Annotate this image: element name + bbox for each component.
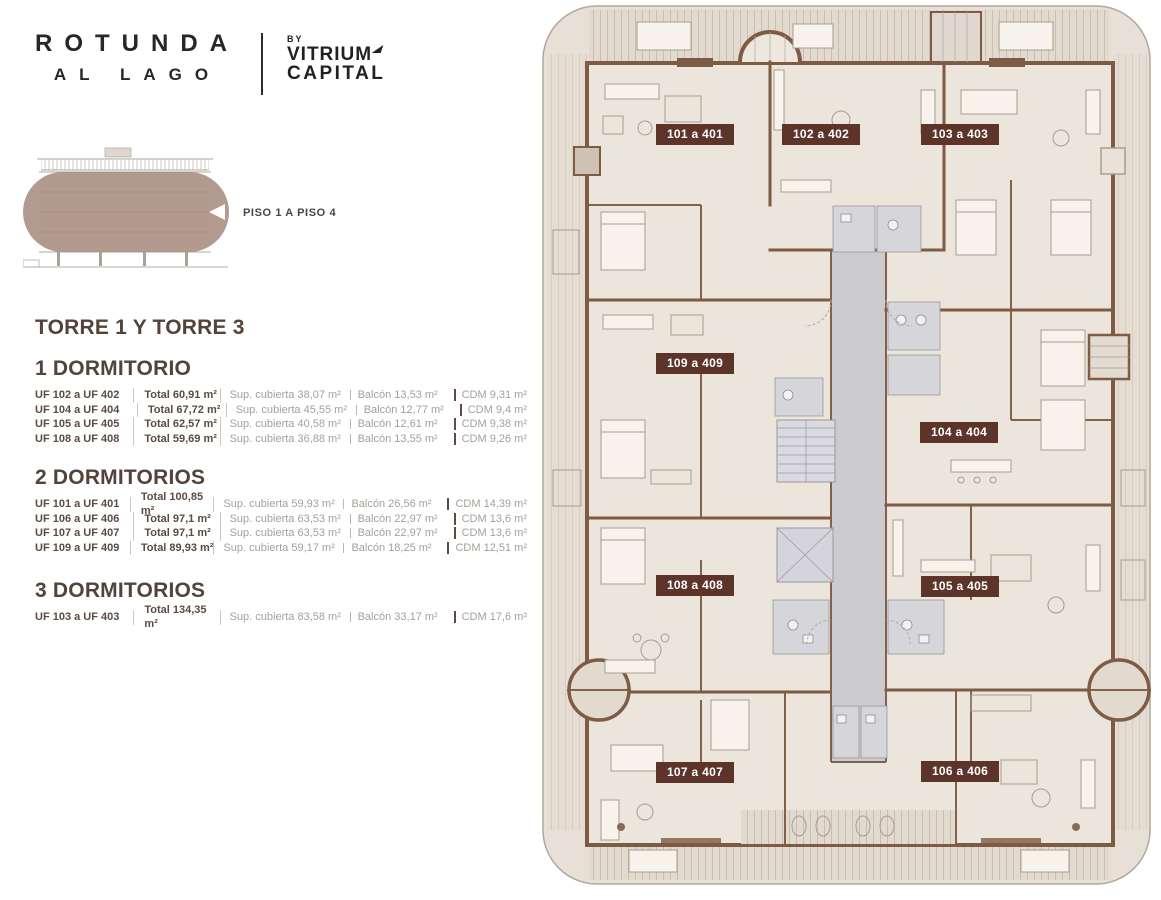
covered-area: Sup. cubierta 83,58 m²: [230, 610, 348, 625]
separator: [454, 513, 456, 525]
table-row: UF 102 a UF 402 Total 60,91 m² Sup. cubi…: [35, 388, 527, 403]
separator: [454, 418, 456, 430]
separator: [350, 419, 351, 429]
unit-table: UF 103 a UF 403 Total 134,35 m² Sup. cub…: [35, 610, 527, 625]
total-area: Total 60,91 m²: [133, 388, 219, 403]
balcony-area: Balcón 22,97 m²: [358, 526, 450, 541]
unit-range: UF 106 a UF 406: [35, 512, 133, 527]
right-edge-stair: [1089, 335, 1129, 379]
unit-badge-102: 102 a 402: [782, 124, 860, 145]
separator: [454, 611, 456, 623]
table-row: UF 103 a UF 403 Total 134,35 m² Sup. cub…: [35, 610, 527, 625]
balcony-area: Balcón 26,56 m²: [351, 497, 443, 512]
separator: [343, 499, 344, 509]
vitrium-logo: BY VITRIUM CAPITAL: [287, 30, 385, 84]
vitrium-wordmark: VITRIUM: [287, 46, 385, 64]
info-panel: ROTUNDA AL LAGO BY VITRIUM CAPITAL: [0, 0, 541, 900]
unit-badge-109: 109 a 409: [656, 353, 734, 374]
unit-badge-108: 108 a 408: [656, 575, 734, 596]
area-breakdown: Sup. cubierta 63,53 m² Balcón 22,97 m² C…: [220, 526, 527, 541]
separator: [454, 527, 456, 539]
unit-badge-107: 107 a 407: [656, 762, 734, 783]
unit-badge-103: 103 a 403: [921, 124, 999, 145]
section-title: 1 DORMITORIO: [35, 357, 527, 381]
covered-area: Sup. cubierta 45,55 m²: [236, 403, 354, 418]
balcony-area: Balcón 22,97 m²: [358, 512, 450, 527]
separator: [454, 433, 456, 445]
unit-range: UF 109 a UF 409: [35, 541, 130, 556]
total-area: Total 89,93 m²: [130, 541, 214, 556]
table-row: UF 106 a UF 406 Total 97,1 m² Sup. cubie…: [35, 512, 527, 527]
table-row: UF 108 a UF 408 Total 59,69 m² Sup. cubi…: [35, 432, 527, 447]
separator: [350, 434, 351, 444]
separator: [460, 404, 462, 416]
cdm-area: CDM 9,31 m²: [462, 388, 527, 403]
by-label: BY: [287, 34, 385, 44]
separator: [447, 542, 449, 554]
unit-badge-101: 101 a 401: [656, 124, 734, 145]
brand-lockup: ROTUNDA AL LAGO BY VITRIUM CAPITAL: [25, 30, 385, 95]
total-area: Total 62,57 m²: [133, 417, 219, 432]
floor-plan: 101 a 401 102 a 402 103 a 403 109 a 409 …: [541, 0, 1161, 900]
table-row: UF 107 a UF 407 Total 97,1 m² Sup. cubie…: [35, 526, 527, 541]
table-row: UF 109 a UF 409 Total 89,93 m² Sup. cubi…: [35, 541, 527, 556]
area-breakdown: Sup. cubierta 40,58 m² Balcón 12,61 m² C…: [220, 417, 527, 432]
area-breakdown: Sup. cubierta 38,07 m² Balcón 13,53 m² C…: [220, 388, 527, 403]
covered-area: Sup. cubierta 59,17 m²: [223, 541, 341, 556]
section-title: 2 DORMITORIOS: [35, 466, 527, 490]
section-title: 3 DORMITORIOS: [35, 579, 527, 603]
total-area: Total 67,72 m²: [137, 403, 226, 418]
balcony-area: Balcón 13,55 m²: [358, 432, 450, 447]
unit-badge-104: 104 a 404: [920, 422, 998, 443]
unit-range: UF 102 a UF 402: [35, 388, 133, 403]
unit-range: UF 103 a UF 403: [35, 610, 133, 625]
unit-table: UF 101 a UF 401 Total 100,85 m² Sup. cub…: [35, 497, 527, 555]
brand-name-line2: AL LAGO: [25, 65, 250, 85]
section-3-dormitorios: 3 DORMITORIOS UF 103 a UF 403 Total 134,…: [35, 579, 527, 625]
logo-divider: [261, 33, 263, 95]
cdm-area: CDM 13,6 m²: [462, 526, 527, 541]
total-area: Total 59,69 m²: [133, 432, 219, 447]
total-area: Total 97,1 m²: [133, 512, 219, 527]
unit-specs: TORRE 1 Y TORRE 3 1 DORMITORIO UF 102 a …: [35, 316, 527, 625]
unit-range: UF 105 a UF 405: [35, 417, 133, 432]
capital-text: CAPITAL: [287, 64, 385, 84]
separator: [350, 514, 351, 524]
total-area: Total 97,1 m²: [133, 526, 219, 541]
unit-range: UF 107 a UF 407: [35, 526, 133, 541]
area-breakdown: Sup. cubierta 83,58 m² Balcón 33,17 m² C…: [220, 610, 527, 625]
cdm-area: CDM 13,6 m²: [462, 512, 527, 527]
area-breakdown: Sup. cubierta 63,53 m² Balcón 22,97 m² C…: [220, 512, 527, 527]
covered-area: Sup. cubierta 63,53 m²: [230, 526, 348, 541]
unit-range: UF 104 a UF 404: [35, 403, 137, 418]
separator: [356, 405, 357, 415]
cdm-area: CDM 9,38 m²: [462, 417, 527, 432]
covered-area: Sup. cubierta 40,58 m²: [230, 417, 348, 432]
building-elevation: [23, 146, 233, 278]
unit-range: UF 101 a UF 401: [35, 497, 130, 512]
separator: [350, 612, 351, 622]
unit-badge-106: 106 a 406: [921, 761, 999, 782]
separator: [454, 389, 456, 401]
balcony-area: Balcón 12,77 m²: [364, 403, 456, 418]
area-breakdown: Sup. cubierta 45,55 m² Balcón 12,77 m² C…: [226, 403, 527, 418]
table-row: UF 105 a UF 405 Total 62,57 m² Sup. cubi…: [35, 417, 527, 432]
vitrium-flag-icon: [372, 45, 384, 53]
section-2-dormitorios: 2 DORMITORIOS UF 101 a UF 401 Total 100,…: [35, 466, 527, 555]
separator: [350, 528, 351, 538]
total-area: Total 134,35 m²: [133, 610, 219, 625]
covered-area: Sup. cubierta 36,88 m²: [230, 432, 348, 447]
floor-range-label: PISO 1 A PISO 4: [243, 207, 336, 219]
area-breakdown: Sup. cubierta 36,88 m² Balcón 13,55 m² C…: [220, 432, 527, 447]
table-row: UF 101 a UF 401 Total 100,85 m² Sup. cub…: [35, 497, 527, 512]
balcony-area: Balcón 13,53 m²: [358, 388, 450, 403]
cdm-area: CDM 14,39 m²: [455, 497, 527, 512]
tower-title: TORRE 1 Y TORRE 3: [35, 316, 527, 340]
elevator: [777, 528, 833, 582]
area-breakdown: Sup. cubierta 59,17 m² Balcón 18,25 m² C…: [213, 541, 527, 556]
separator: [343, 543, 344, 553]
unit-badge-105: 105 a 405: [921, 576, 999, 597]
covered-area: Sup. cubierta 59,93 m²: [223, 497, 341, 512]
unit-table: UF 102 a UF 402 Total 60,91 m² Sup. cubi…: [35, 388, 527, 446]
cdm-area: CDM 17,6 m²: [462, 610, 527, 625]
balcony-area: Balcón 12,61 m²: [358, 417, 450, 432]
covered-area: Sup. cubierta 63,53 m²: [230, 512, 348, 527]
brochure-page: ROTUNDA AL LAGO BY VITRIUM CAPITAL: [0, 0, 1161, 900]
area-breakdown: Sup. cubierta 59,93 m² Balcón 26,56 m² C…: [213, 497, 527, 512]
separator: [447, 498, 449, 510]
cdm-area: CDM 9,4 m²: [468, 403, 527, 418]
balcony-area: Balcón 18,25 m²: [351, 541, 443, 556]
cdm-area: CDM 9,26 m²: [462, 432, 527, 447]
balcony-area: Balcón 33,17 m²: [358, 610, 450, 625]
table-row: UF 104 a UF 404 Total 67,72 m² Sup. cubi…: [35, 403, 527, 418]
rotunda-logo: ROTUNDA AL LAGO: [25, 30, 237, 85]
separator: [350, 390, 351, 400]
central-stair: [777, 420, 835, 482]
vitrium-text: VITRIUM: [287, 46, 372, 64]
building-elevation-drawing: [23, 146, 233, 278]
floor-highlight-overlay: [23, 172, 229, 252]
section-1-dormitorio: 1 DORMITORIO UF 102 a UF 402 Total 60,91…: [35, 357, 527, 446]
unit-range: UF 108 a UF 408: [35, 432, 133, 447]
total-area: Total 100,85 m²: [130, 497, 214, 512]
covered-area: Sup. cubierta 38,07 m²: [230, 388, 348, 403]
brand-name-line1: ROTUNDA: [25, 30, 249, 58]
cdm-area: CDM 12,51 m²: [455, 541, 527, 556]
